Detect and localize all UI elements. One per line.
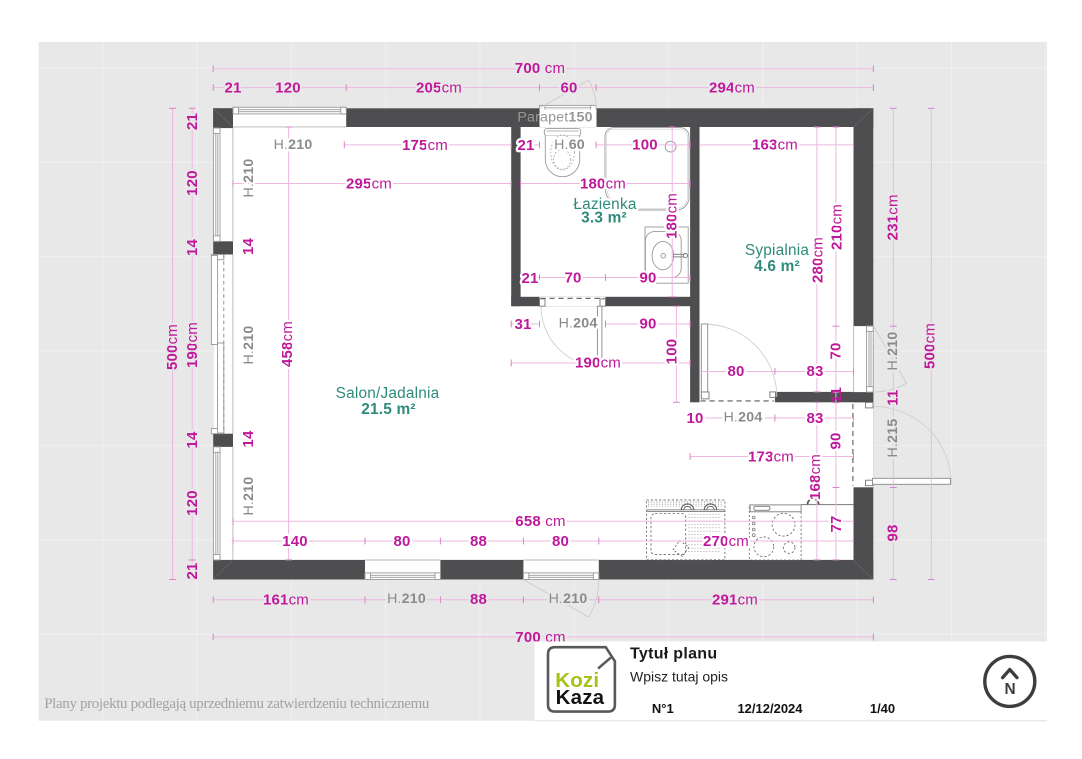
- svg-text:77: 77: [828, 515, 845, 532]
- svg-text:31: 31: [514, 316, 531, 333]
- svg-text:12/12/2024: 12/12/2024: [737, 701, 803, 716]
- svg-text:80: 80: [393, 533, 410, 550]
- svg-text:H.215: H.215: [885, 419, 901, 458]
- svg-text:120: 120: [275, 79, 301, 96]
- svg-text:80: 80: [552, 533, 569, 550]
- svg-text:H.210: H.210: [549, 591, 588, 607]
- svg-text:100: 100: [663, 339, 680, 365]
- svg-text:180cm: 180cm: [663, 193, 680, 239]
- svg-text:60: 60: [560, 79, 577, 96]
- svg-text:70: 70: [564, 269, 581, 286]
- svg-text:180cm: 180cm: [580, 175, 626, 192]
- svg-text:90: 90: [827, 432, 844, 449]
- svg-text:70: 70: [827, 342, 844, 359]
- svg-text:14: 14: [240, 238, 257, 256]
- svg-text:14: 14: [184, 239, 201, 257]
- svg-text:14: 14: [184, 431, 201, 449]
- svg-text:Parapet150: Parapet150: [517, 110, 592, 126]
- svg-text:Sypialnia: Sypialnia: [745, 242, 809, 259]
- svg-text:83: 83: [806, 410, 823, 427]
- svg-text:11: 11: [828, 387, 845, 403]
- svg-text:280cm: 280cm: [809, 237, 826, 283]
- svg-text:98: 98: [884, 524, 901, 541]
- svg-text:H.210: H.210: [241, 477, 257, 516]
- svg-text:458cm: 458cm: [279, 321, 296, 367]
- svg-text:700 cm: 700 cm: [515, 60, 565, 77]
- svg-text:Kaza: Kaza: [556, 686, 605, 709]
- svg-text:H.210: H.210: [387, 591, 426, 607]
- svg-text:90: 90: [639, 269, 656, 286]
- svg-text:11: 11: [884, 389, 901, 405]
- svg-text:21: 21: [184, 562, 201, 579]
- svg-text:H.210: H.210: [274, 137, 313, 153]
- svg-text:168cm: 168cm: [807, 454, 824, 500]
- svg-text:Wpisz tutaj opis: Wpisz tutaj opis: [630, 669, 728, 685]
- svg-text:Plany projektu podlegają uprze: Plany projektu podlegają uprzedniemu zat…: [44, 696, 430, 712]
- svg-text:21: 21: [224, 79, 241, 96]
- svg-text:140: 140: [282, 533, 308, 550]
- svg-text:83: 83: [806, 363, 823, 380]
- svg-text:88: 88: [470, 533, 487, 550]
- svg-text:270cm: 270cm: [703, 533, 749, 550]
- svg-text:231cm: 231cm: [884, 194, 901, 240]
- svg-text:21.5 m²: 21.5 m²: [361, 400, 415, 417]
- svg-text:H.204: H.204: [559, 316, 598, 332]
- svg-text:210cm: 210cm: [828, 204, 845, 250]
- svg-text:190cm: 190cm: [184, 322, 201, 368]
- svg-text:H.60: H.60: [554, 137, 585, 153]
- svg-text:Tytuł planu: Tytuł planu: [630, 645, 717, 662]
- svg-text:4.6 m²: 4.6 m²: [754, 257, 800, 274]
- svg-text:205cm: 205cm: [416, 79, 462, 96]
- svg-text:H.210: H.210: [241, 159, 257, 198]
- svg-text:1/40: 1/40: [870, 701, 895, 716]
- svg-text:658 cm: 658 cm: [515, 513, 565, 530]
- svg-text:H.210: H.210: [885, 332, 901, 371]
- svg-text:90: 90: [639, 315, 656, 332]
- svg-text:100: 100: [632, 136, 658, 153]
- svg-text:21: 21: [521, 269, 538, 286]
- svg-text:175cm: 175cm: [402, 137, 448, 154]
- svg-text:N°1: N°1: [652, 701, 674, 716]
- svg-text:21: 21: [184, 113, 201, 130]
- svg-text:H.210: H.210: [241, 326, 257, 365]
- svg-text:N: N: [1005, 681, 1016, 698]
- svg-text:Salon/Jadalnia: Salon/Jadalnia: [336, 384, 440, 401]
- svg-text:163cm: 163cm: [752, 136, 798, 153]
- svg-text:291cm: 291cm: [712, 591, 758, 608]
- svg-text:21: 21: [517, 136, 534, 153]
- svg-text:80: 80: [727, 363, 744, 380]
- svg-text:120: 120: [184, 170, 201, 196]
- svg-text:88: 88: [470, 591, 487, 608]
- svg-text:173cm: 173cm: [748, 448, 794, 465]
- svg-text:14: 14: [240, 430, 257, 448]
- svg-text:500cm: 500cm: [164, 324, 181, 370]
- svg-text:500cm: 500cm: [921, 323, 938, 369]
- svg-text:190cm: 190cm: [575, 354, 621, 371]
- svg-text:120: 120: [184, 490, 201, 516]
- svg-text:161cm: 161cm: [263, 591, 309, 608]
- svg-text:10: 10: [686, 410, 703, 427]
- svg-text:3.3 m²: 3.3 m²: [581, 209, 627, 226]
- svg-text:H.204: H.204: [724, 410, 763, 426]
- svg-text:295cm: 295cm: [346, 175, 392, 192]
- svg-text:294cm: 294cm: [709, 79, 755, 96]
